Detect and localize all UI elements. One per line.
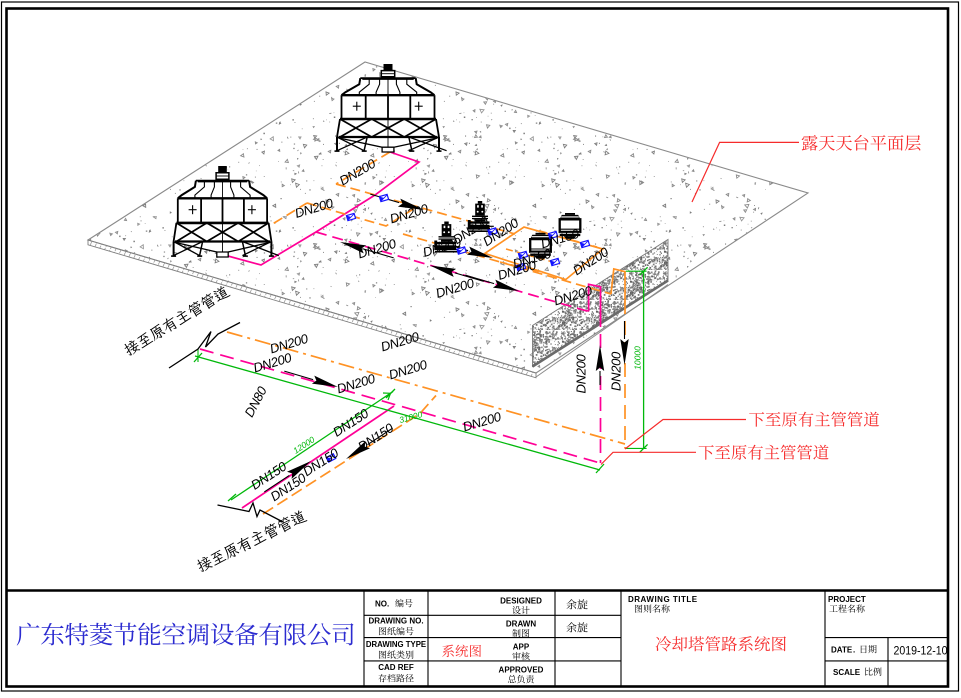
svg-text:NO.: NO. [375,600,389,609]
svg-text:APPROVED: APPROVED [499,666,544,675]
svg-text:.: . [853,646,855,655]
svg-text:DRAWING TITLE: DRAWING TITLE [628,595,698,604]
svg-text:DN200: DN200 [574,353,589,393]
svg-text:DRAWING NO.: DRAWING NO. [368,617,423,626]
svg-text:APP: APP [513,643,530,652]
svg-text:SCALE: SCALE [833,668,861,677]
svg-text:DN200: DN200 [609,351,624,391]
svg-text:DATE: DATE [831,646,853,655]
svg-text:CAD REF: CAD REF [378,663,414,672]
svg-text:DESIGNED: DESIGNED [500,597,542,606]
svg-text:PROJECT: PROJECT [828,595,866,604]
svg-text:2019-12-10: 2019-12-10 [894,646,948,658]
svg-text:10000: 10000 [633,346,643,370]
svg-text:DRAWN: DRAWN [506,620,536,629]
svg-text:DRAWING TYPE: DRAWING TYPE [366,640,426,649]
